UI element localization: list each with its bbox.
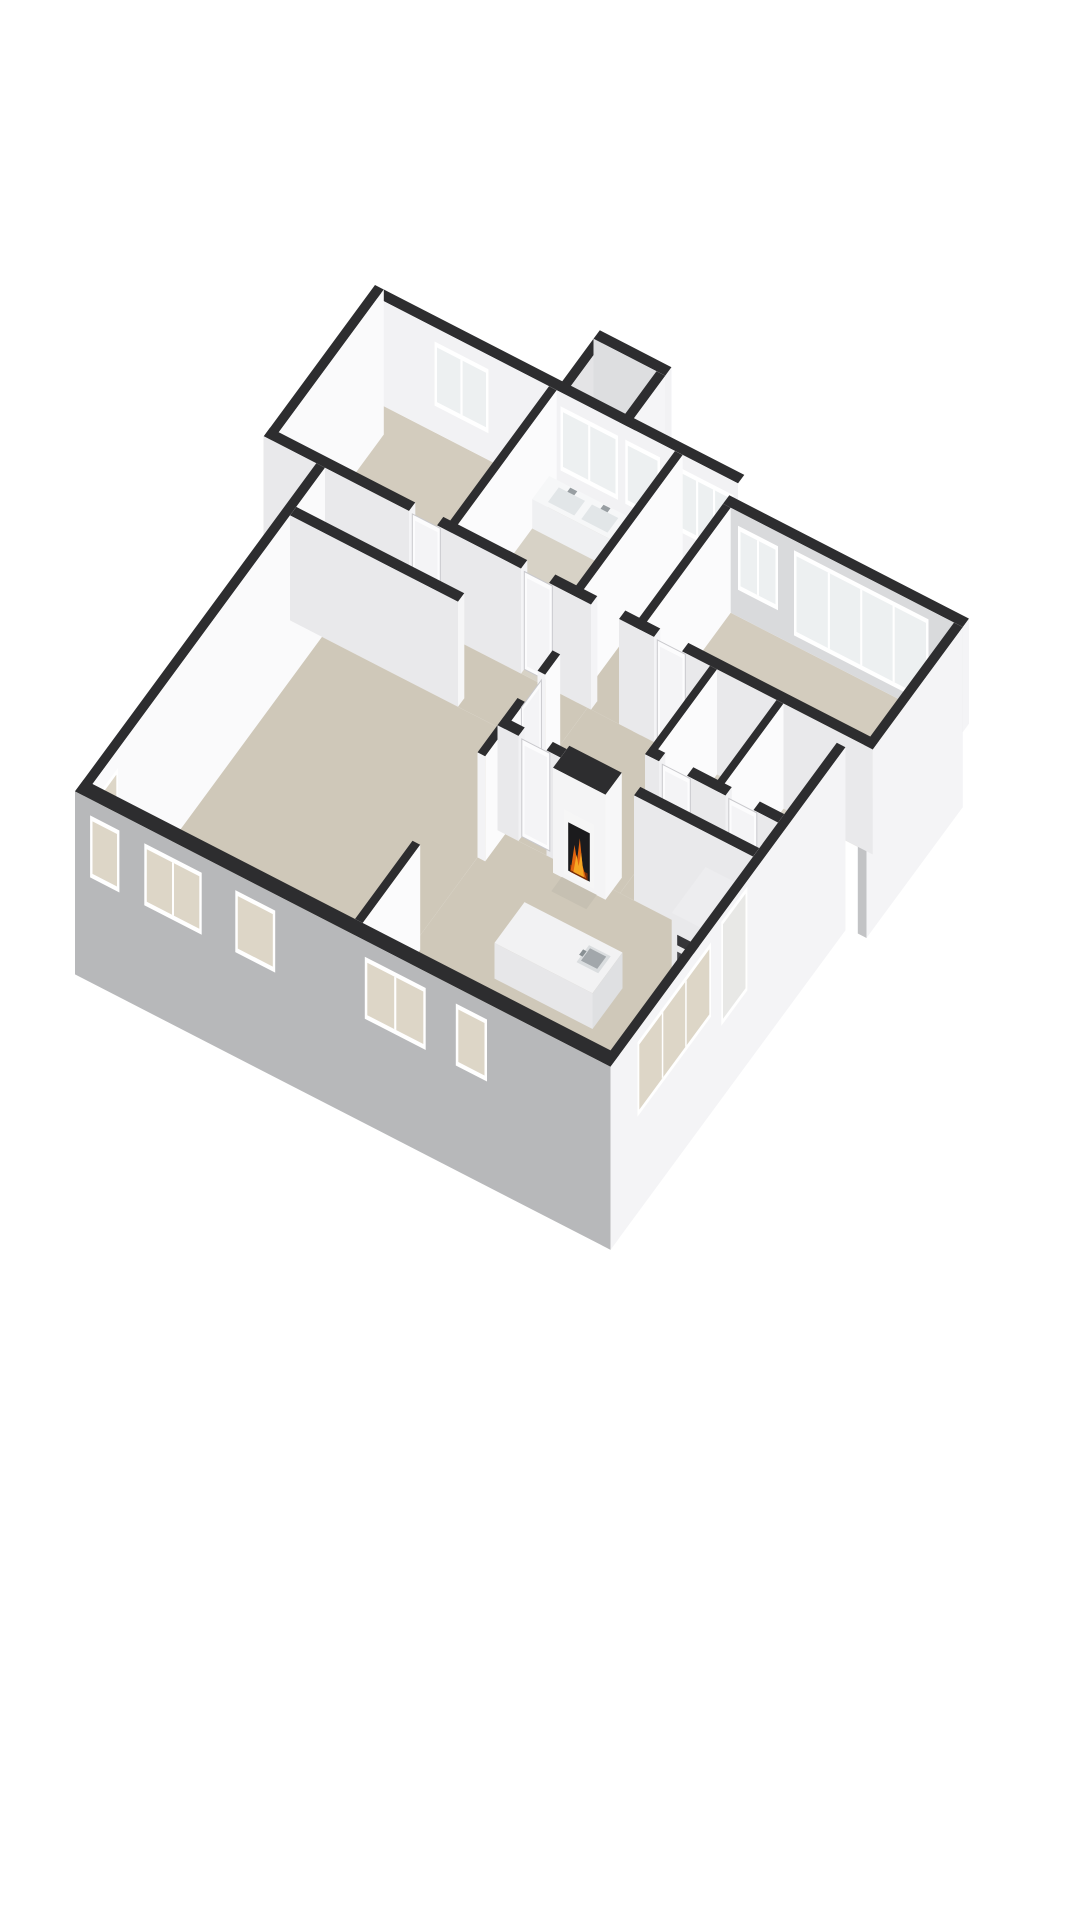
bedroom-east-north-wall-cap <box>963 619 969 733</box>
north-strip-south-wall-cap <box>591 596 597 710</box>
window-mullion <box>696 481 698 537</box>
layer-50.2 <box>522 739 550 851</box>
window-mullion <box>685 980 687 1047</box>
door-hall-kitchen-panel <box>525 746 548 846</box>
floorplan-3d-rendering <box>0 0 1080 1920</box>
window-mullion <box>893 606 895 683</box>
fireplace-chimney-cap <box>606 773 622 900</box>
floorplan-page <box>0 0 1080 1920</box>
kitchen-hall-wall-face <box>498 725 519 841</box>
north-strip-south-wall-cap <box>873 741 879 855</box>
living-hall-arm-wall-cap <box>458 593 464 707</box>
facade-southwest-cap <box>611 1055 620 1250</box>
window-mullion <box>662 1012 664 1079</box>
window-mullion <box>757 540 759 596</box>
window-mullion <box>172 862 174 916</box>
window-mullion <box>588 425 590 481</box>
window-mullion <box>460 360 462 416</box>
window-mullion <box>394 977 396 1031</box>
window-mullion <box>860 589 862 666</box>
north-strip-south-wall-face <box>619 619 654 742</box>
window-mullion <box>828 572 830 649</box>
living-hall-partition-cap <box>478 752 486 861</box>
